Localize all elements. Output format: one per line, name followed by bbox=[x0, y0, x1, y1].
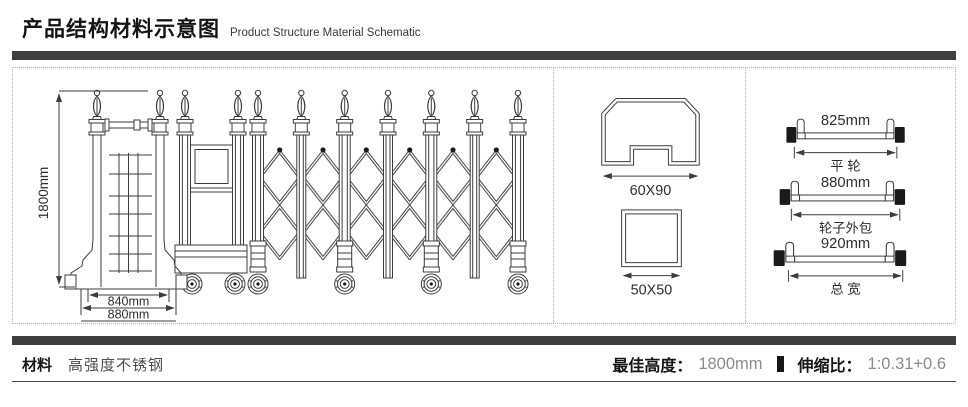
top-divider-bar bbox=[12, 51, 956, 60]
post-profile-label: 50X50 bbox=[631, 282, 673, 298]
material-value: 高强度不锈钢 bbox=[68, 354, 164, 375]
rail-profile-label: 60X90 bbox=[630, 183, 672, 199]
best-height-label: 最佳高度： bbox=[612, 352, 692, 376]
best-height-value: 1800mm bbox=[698, 355, 762, 374]
axle-3-value: 920mm bbox=[821, 236, 870, 252]
material-spec: 材料 高强度不锈钢 bbox=[22, 354, 164, 375]
gate-end-view bbox=[65, 90, 187, 289]
specs: 最佳高度： 1800mm 伸缩比： 1:0.31+0.6 bbox=[612, 352, 946, 376]
axle-2-value: 880mm bbox=[821, 175, 870, 191]
bottom-divider-bar bbox=[12, 336, 956, 345]
ratio-label: 伸缩比： bbox=[798, 352, 862, 376]
rail-profile-60x90: 60X90 bbox=[602, 99, 699, 199]
post-profile-50x50: 50X50 bbox=[622, 210, 682, 299]
page-header: 产品结构材料示意图 Product Structure Material Sch… bbox=[0, 0, 968, 43]
spec-divider-mark bbox=[777, 356, 784, 372]
gate-width-dimensions: 840mm 880mm bbox=[81, 289, 176, 322]
axle-1-value: 825mm bbox=[821, 113, 870, 129]
page-title: 产品结构材料示意图 bbox=[22, 13, 220, 43]
footer: 材料 高强度不锈钢 最佳高度： 1800mm 伸缩比： 1:0.31+0.6 bbox=[12, 353, 956, 375]
page-subtitle: Product Structure Material Schematic bbox=[230, 27, 420, 39]
footer-rule bbox=[12, 381, 956, 382]
axle-wheel-outer: 880mm 轮子外包 bbox=[780, 175, 905, 235]
material-label: 材料 bbox=[22, 354, 52, 375]
axles-drawing: 825mm 平 轮 880mm 轮子外包 920mm bbox=[746, 68, 955, 323]
product-schematic-page: 产品结构材料示意图 Product Structure Material Sch… bbox=[0, 0, 968, 407]
gate-outer-width-label: 880mm bbox=[108, 308, 150, 322]
gate-inner-width-label: 840mm bbox=[108, 295, 150, 309]
schematic-area: 1800mm 840mm 880mm bbox=[12, 67, 956, 324]
axle-flat-wheel: 825mm 平 轮 bbox=[786, 113, 904, 173]
profiles-drawing: 60X90 50X50 bbox=[554, 68, 745, 323]
axle-total-width: 920mm 总 宽 bbox=[774, 236, 906, 296]
axle-1-label: 平 轮 bbox=[830, 158, 860, 173]
ratio-value: 1:0.31+0.6 bbox=[868, 355, 946, 374]
axle-2-label: 轮子外包 bbox=[819, 220, 872, 235]
gate-drawing: 1800mm 840mm 880mm bbox=[13, 68, 553, 323]
gate-drawing-panel: 1800mm 840mm 880mm bbox=[13, 68, 553, 323]
axles-panel: 825mm 平 轮 880mm 轮子外包 920mm bbox=[745, 68, 955, 323]
axle-3-label: 总 宽 bbox=[830, 281, 860, 297]
gate-height-label: 1800mm bbox=[36, 167, 51, 220]
profiles-panel: 60X90 50X50 bbox=[553, 68, 745, 323]
